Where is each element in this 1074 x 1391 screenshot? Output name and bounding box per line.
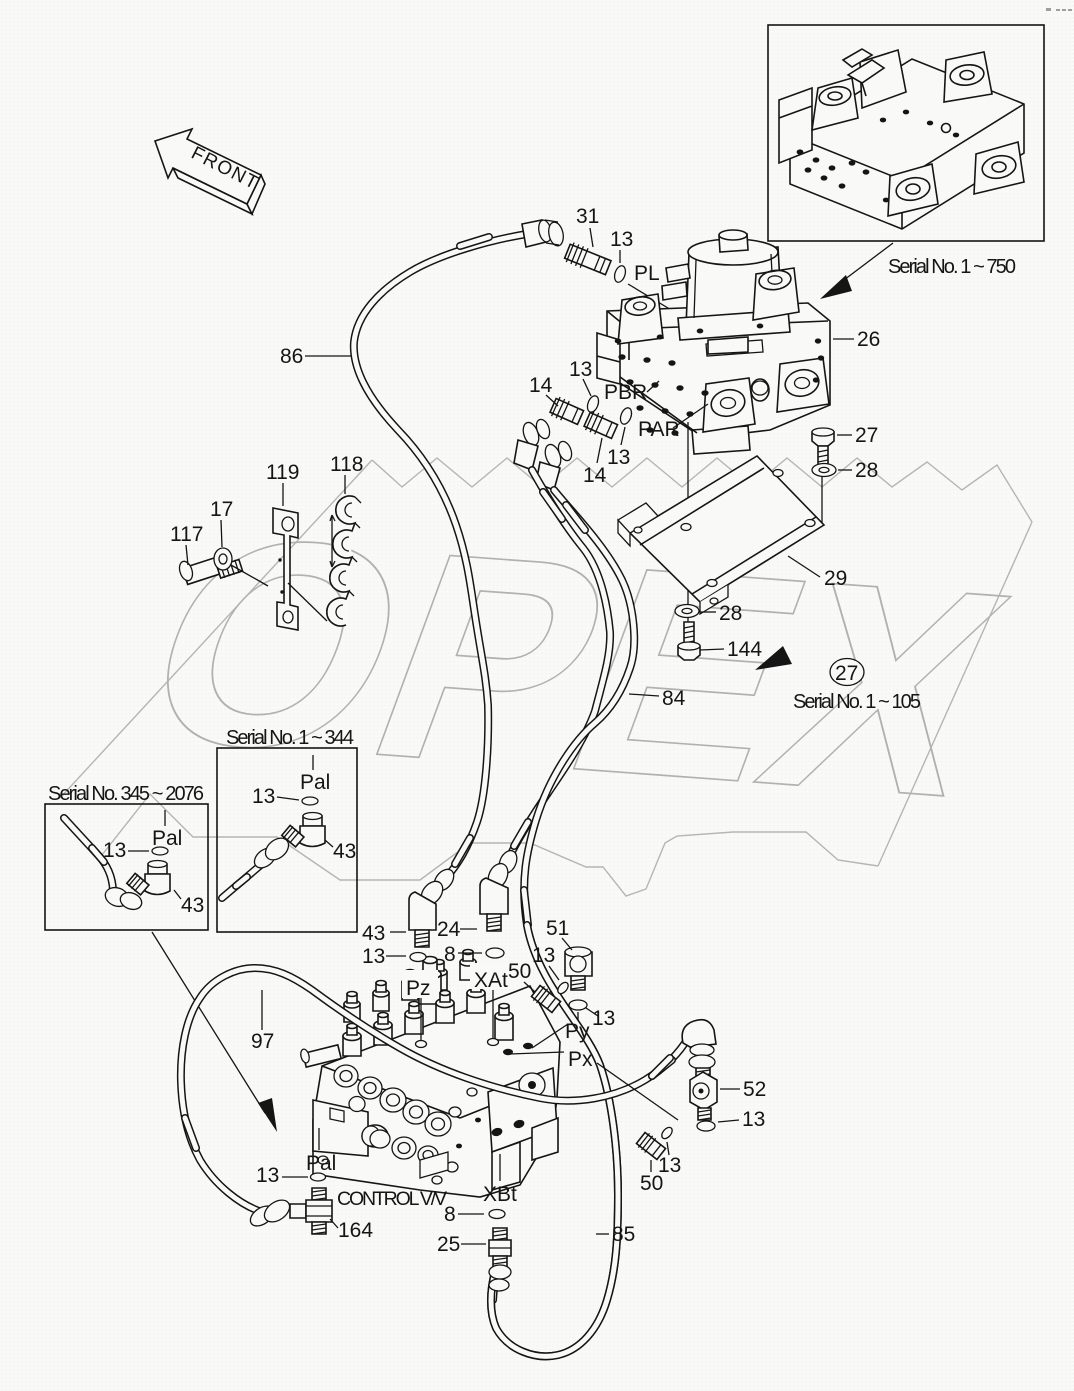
- svg-text:86: 86: [280, 345, 303, 368]
- svg-text:Serial No. 1 ~ 105: Serial No. 1 ~ 105: [793, 691, 921, 713]
- svg-text:84: 84: [662, 687, 686, 710]
- svg-text:14: 14: [583, 464, 607, 487]
- svg-text:Pz: Pz: [406, 977, 431, 1000]
- svg-text:97: 97: [251, 1030, 274, 1053]
- svg-text:CONTROL V/V: CONTROL V/V: [337, 1188, 447, 1210]
- svg-text:XBt: XBt: [483, 1183, 517, 1206]
- svg-text:28: 28: [719, 602, 742, 625]
- svg-text:164: 164: [338, 1219, 373, 1242]
- svg-text:50: 50: [508, 960, 531, 983]
- svg-text:13: 13: [658, 1154, 681, 1177]
- svg-text:Pal: Pal: [306, 1152, 336, 1175]
- svg-text:Serial No. 1 ~ 750: Serial No. 1 ~ 750: [888, 256, 1016, 278]
- svg-text:27: 27: [855, 424, 878, 447]
- svg-text:13: 13: [610, 228, 633, 251]
- svg-text:52: 52: [743, 1078, 766, 1101]
- svg-text:14: 14: [529, 374, 553, 397]
- svg-text:28: 28: [855, 459, 878, 482]
- svg-text:144: 144: [727, 638, 762, 661]
- svg-text:Serial No. 345 ~ 2076: Serial No. 345 ~ 2076: [48, 783, 204, 805]
- svg-text:Pal: Pal: [300, 771, 330, 794]
- svg-text:8: 8: [444, 1203, 456, 1226]
- svg-text:51: 51: [546, 917, 569, 940]
- svg-text:Py: Py: [565, 1020, 590, 1043]
- svg-text:26: 26: [857, 328, 880, 351]
- svg-text:13: 13: [252, 785, 275, 808]
- svg-text:43: 43: [362, 922, 385, 945]
- svg-text:17: 17: [210, 498, 233, 521]
- svg-text:8: 8: [444, 943, 456, 966]
- svg-text:13: 13: [532, 944, 555, 967]
- svg-text:118: 118: [330, 453, 363, 476]
- svg-text:31: 31: [576, 205, 599, 228]
- svg-text:13: 13: [362, 945, 385, 968]
- svg-text:XAt: XAt: [474, 969, 508, 992]
- svg-text:Px: Px: [568, 1048, 593, 1071]
- svg-text:43: 43: [333, 840, 356, 863]
- svg-text:13: 13: [592, 1007, 615, 1030]
- svg-text:24: 24: [437, 918, 461, 941]
- svg-text:13: 13: [256, 1164, 279, 1187]
- svg-text:13: 13: [569, 358, 592, 381]
- svg-text:43: 43: [181, 894, 204, 917]
- svg-text:27: 27: [835, 662, 858, 685]
- svg-text:PL: PL: [634, 262, 660, 285]
- svg-text:Pal: Pal: [152, 827, 182, 850]
- svg-text:13: 13: [103, 839, 126, 862]
- svg-text:13: 13: [742, 1108, 765, 1131]
- svg-text:PAR: PAR: [638, 418, 680, 441]
- svg-text:85: 85: [612, 1223, 635, 1246]
- svg-text:13: 13: [607, 446, 630, 469]
- svg-text:29: 29: [824, 567, 847, 590]
- svg-text:119: 119: [266, 461, 299, 484]
- svg-text:25: 25: [437, 1233, 460, 1256]
- svg-text:PBR: PBR: [604, 381, 647, 404]
- svg-text:117: 117: [170, 523, 203, 546]
- svg-text:Serial No. 1 ~ 344: Serial No. 1 ~ 344: [226, 727, 354, 749]
